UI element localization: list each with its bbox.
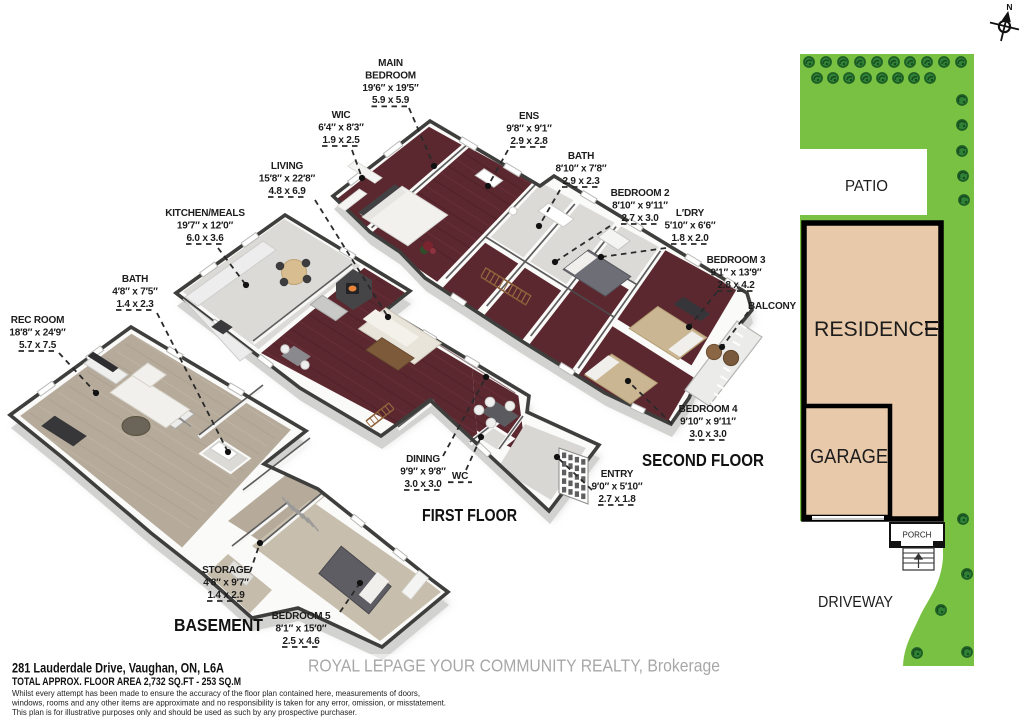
svg-text:6.0 x 3.6: 6.0 x 3.6 (186, 233, 224, 244)
svg-text:WIC: WIC (332, 110, 351, 121)
svg-text:5′10″ x 6′6″: 5′10″ x 6′6″ (665, 220, 716, 231)
svg-text:281 Lauderdale Drive, Vaughan,: 281 Lauderdale Drive, Vaughan, ON, L6A (12, 661, 224, 676)
svg-text:5.7 x 7.5: 5.7 x 7.5 (19, 340, 57, 351)
svg-text:4′8″ x 9′7″: 4′8″ x 9′7″ (203, 577, 249, 588)
svg-text:ENS: ENS (519, 111, 539, 122)
svg-text:1.4 x 2.3: 1.4 x 2.3 (116, 299, 154, 310)
svg-text:2.9 x 2.3: 2.9 x 2.3 (562, 176, 600, 187)
svg-text:2.5 x 4.6: 2.5 x 4.6 (282, 636, 320, 647)
svg-text:2.9 x 2.8: 2.9 x 2.8 (510, 136, 548, 147)
svg-text:BALCONY: BALCONY (748, 301, 797, 312)
svg-text:4.8 x 6.9: 4.8 x 6.9 (268, 186, 306, 197)
svg-text:PORCH: PORCH (903, 531, 932, 540)
svg-text:8′10″ x 9′11″: 8′10″ x 9′11″ (612, 200, 668, 211)
svg-text:5.9 x 5.9: 5.9 x 5.9 (372, 95, 410, 106)
svg-text:BASEMENT: BASEMENT (174, 615, 263, 635)
svg-text:BEDROOM 4: BEDROOM 4 (679, 404, 738, 415)
svg-text:1.4 x 2.9: 1.4 x 2.9 (207, 590, 245, 601)
svg-text:GARAGE: GARAGE (810, 446, 888, 468)
svg-text:15′8″ x 22′8″: 15′8″ x 22′8″ (259, 173, 316, 184)
svg-text:18′8″ x 24′9″: 18′8″ x 24′9″ (9, 327, 66, 338)
svg-text:windows, rooms and any other i: windows, rooms and any other items are a… (11, 699, 446, 708)
svg-text:FIRST FLOOR: FIRST FLOOR (422, 505, 517, 525)
svg-text:SECOND FLOOR: SECOND FLOOR (642, 450, 764, 470)
svg-text:L′DRY: L′DRY (676, 208, 705, 219)
svg-text:This plan is for illustrative: This plan is for illustrative purposes o… (12, 708, 357, 717)
svg-text:9′9″ x 9′8″: 9′9″ x 9′8″ (400, 466, 446, 477)
svg-text:19′6″ x 19′5″: 19′6″ x 19′5″ (362, 83, 419, 94)
svg-text:Whilst every attempt has been: Whilst every attempt has been made to en… (12, 689, 420, 698)
svg-text:BATH: BATH (568, 151, 594, 162)
svg-text:STORAGE: STORAGE (202, 565, 250, 576)
svg-text:1.8 x 2.0: 1.8 x 2.0 (671, 233, 709, 244)
svg-text:KITCHEN/MEALS: KITCHEN/MEALS (165, 208, 245, 219)
svg-text:REC ROOM: REC ROOM (11, 315, 64, 326)
svg-text:9′10″ x 9′11″: 9′10″ x 9′11″ (680, 416, 736, 427)
svg-text:9′8″ x 9′1″: 9′8″ x 9′1″ (506, 123, 552, 134)
svg-text:2.7 x 3.0: 2.7 x 3.0 (621, 213, 659, 224)
svg-text:PATIO: PATIO (845, 178, 888, 195)
svg-text:3.0 x 3.0: 3.0 x 3.0 (404, 479, 442, 490)
svg-text:WC: WC (452, 471, 468, 482)
svg-text:2.7 x 1.8: 2.7 x 1.8 (598, 494, 636, 505)
svg-text:BEDROOM 3: BEDROOM 3 (707, 255, 766, 266)
svg-text:9′0″ x 5′10″: 9′0″ x 5′10″ (592, 481, 643, 492)
svg-text:DRIVEWAY: DRIVEWAY (818, 594, 893, 611)
svg-text:BEDROOM: BEDROOM (365, 70, 416, 81)
svg-text:9′1″ x 13′9″: 9′1″ x 13′9″ (711, 267, 762, 278)
svg-text:BEDROOM 2: BEDROOM 2 (611, 188, 670, 199)
svg-text:6′4″ x 8′3″: 6′4″ x 8′3″ (318, 122, 364, 133)
svg-text:LIVING: LIVING (271, 161, 304, 172)
svg-text:4′8″ x 7′5″: 4′8″ x 7′5″ (112, 286, 158, 297)
svg-text:1.9 x 2.5: 1.9 x 2.5 (322, 135, 360, 146)
svg-text:TOTAL APPROX. FLOOR AREA 2,732: TOTAL APPROX. FLOOR AREA 2,732 SQ.FT - 2… (12, 676, 241, 688)
svg-text:ROYAL LEPAGE YOUR COMMUNITY RE: ROYAL LEPAGE YOUR COMMUNITY REALTY, Brok… (308, 656, 720, 676)
svg-text:MAIN: MAIN (378, 58, 403, 69)
svg-text:8′10″ x 7′8″: 8′10″ x 7′8″ (556, 163, 607, 174)
svg-text:RESIDENCE: RESIDENCE (814, 317, 938, 341)
svg-text:BEDROOM 5: BEDROOM 5 (272, 611, 331, 622)
svg-text:BATH: BATH (122, 274, 148, 285)
svg-text:19′7″ x 12′0″: 19′7″ x 12′0″ (177, 220, 234, 231)
svg-text:8′1″ x 15′0″: 8′1″ x 15′0″ (276, 623, 327, 634)
svg-text:N: N (1006, 2, 1012, 12)
svg-text:2.8 x 4.2: 2.8 x 4.2 (717, 280, 755, 291)
svg-text:3.0 x 3.0: 3.0 x 3.0 (689, 429, 727, 440)
svg-text:ENTRY: ENTRY (601, 469, 634, 480)
svg-text:DINING: DINING (406, 454, 440, 465)
